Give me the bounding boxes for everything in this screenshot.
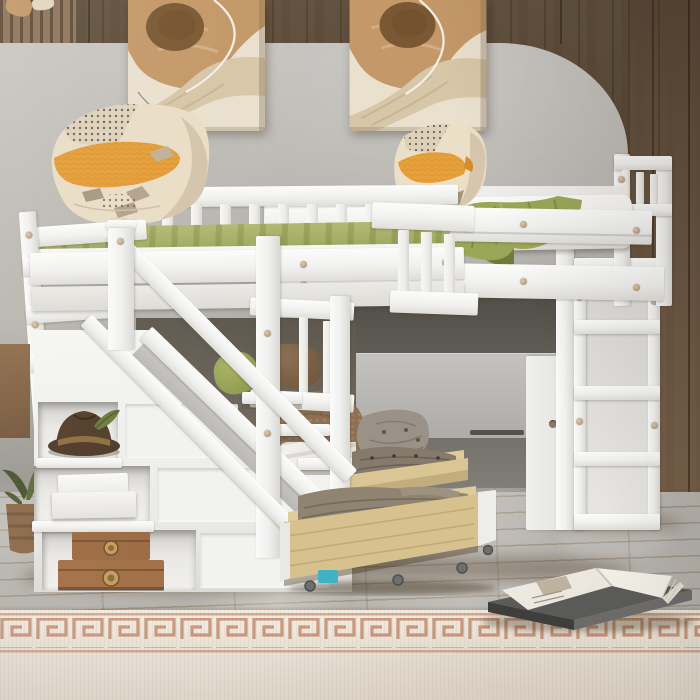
nightstand bbox=[0, 344, 30, 438]
wood-seam bbox=[560, 0, 562, 44]
lower-bed-slat bbox=[299, 317, 308, 397]
screw-cap bbox=[651, 422, 658, 429]
headboard-rail bbox=[614, 156, 672, 170]
headboard-slat bbox=[636, 172, 644, 204]
screw-cap bbox=[633, 284, 640, 291]
guardrail-slat bbox=[421, 232, 432, 296]
teal-toy bbox=[318, 570, 338, 583]
wooden-chests bbox=[52, 528, 170, 592]
screw-cap bbox=[576, 418, 583, 425]
screw-cap bbox=[618, 176, 625, 183]
guardrail-slat bbox=[444, 234, 455, 296]
white-box-stack bbox=[52, 474, 142, 520]
newel-post bbox=[108, 228, 134, 350]
guardrail-slat bbox=[398, 230, 409, 294]
junction-guardrail bbox=[372, 202, 475, 232]
white-box bbox=[52, 491, 136, 518]
screw-cap bbox=[633, 227, 640, 234]
screw-cap bbox=[264, 430, 271, 437]
floor-book bbox=[466, 546, 700, 646]
screw-cap bbox=[520, 221, 527, 228]
shelf-board bbox=[574, 320, 660, 334]
scene bbox=[0, 0, 700, 700]
screw-cap bbox=[520, 278, 527, 285]
shelf-board bbox=[574, 452, 660, 466]
screw-cap bbox=[300, 261, 307, 268]
wood-seam bbox=[88, 0, 90, 46]
wood-seam bbox=[688, 0, 690, 492]
screw-cap bbox=[117, 238, 124, 245]
shelf-board bbox=[574, 514, 660, 530]
junction-guardrail-bottom bbox=[390, 290, 479, 315]
shelf-board bbox=[574, 386, 660, 400]
screw-cap bbox=[264, 330, 271, 337]
headboard-slat bbox=[650, 174, 658, 204]
fedora-hat bbox=[44, 398, 124, 460]
